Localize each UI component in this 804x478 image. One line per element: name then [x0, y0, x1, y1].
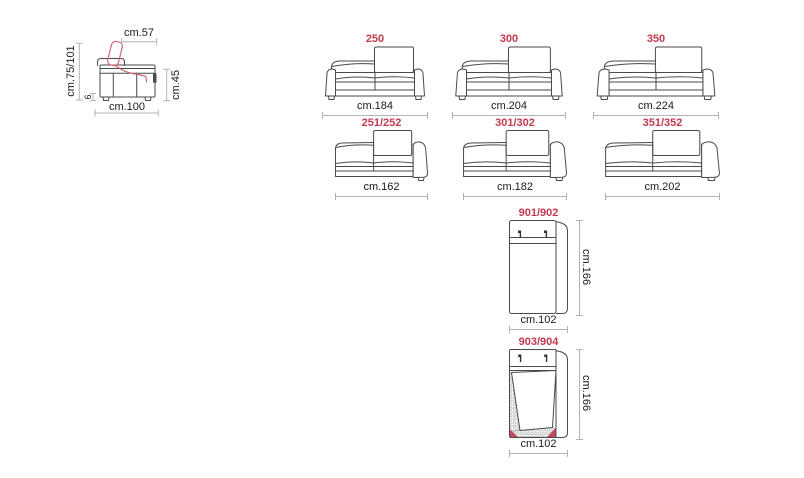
model-301-302-figure: 301/302 cm.182 [463, 117, 567, 200]
width-dimension-label: cm.202 [605, 182, 720, 192]
model-903-904-figure: 903/904 cm.102 cm.166 [509, 336, 568, 457]
width-dimension-label: cm.182 [463, 182, 567, 192]
model-code-label: 903/904 [509, 336, 568, 349]
width-dimension-label: cm.102 [509, 315, 568, 325]
element-top-view-open-drawing [509, 349, 568, 438]
width-dimension-label: cm.162 [335, 182, 428, 192]
sofa-front-drawing [593, 46, 719, 100]
width-dimension-label: cm.102 [509, 439, 568, 449]
width-dimension-line [463, 193, 567, 200]
dim-label-headrest-width: cm.57 [124, 27, 154, 39]
dim-label-depth: cm.100 [109, 101, 145, 113]
width-dimension-line [335, 193, 428, 200]
model-250-figure: 250 cm.184 [322, 33, 428, 119]
dim-label-total-height: cm.75/101 [65, 45, 77, 96]
model-code-label: 250 [322, 33, 428, 46]
model-code-label: 301/302 [463, 117, 567, 130]
height-dimension-label: cm.166 [580, 349, 592, 438]
model-350-figure: 350 cm.224 [593, 33, 719, 119]
model-code-label: 901/902 [509, 207, 568, 220]
model-351-352-figure: 351/352 cm.202 [605, 117, 720, 200]
dim-label-foot-height: 6 [83, 94, 93, 99]
sofa-front-drawing [335, 130, 428, 181]
sofa-side-view-figure: cm.57 cm.75/101 6 cm.45 cm.100 [45, 20, 195, 120]
sofa-front-drawing [605, 130, 720, 181]
width-dimension-label: cm.184 [322, 101, 428, 111]
height-dimension-label: cm.166 [580, 220, 592, 314]
dim-label-seat-height: cm.45 [170, 70, 182, 100]
width-dimension-line [509, 326, 568, 333]
element-top-view-drawing [509, 220, 568, 314]
sofa-front-drawing [452, 46, 566, 100]
model-code-label: 300 [452, 33, 566, 46]
width-dimension-label: cm.204 [452, 101, 566, 111]
model-code-label: 350 [593, 33, 719, 46]
width-dimension-line [605, 193, 720, 200]
sofa-size-chart: cm.57 cm.75/101 6 cm.45 cm.100 250 cm.18… [0, 0, 804, 478]
model-code-label: 251/252 [335, 117, 428, 130]
model-251-252-figure: 251/252 cm.162 [335, 117, 428, 200]
sofa-front-drawing [463, 130, 567, 181]
model-300-figure: 300 cm.204 [452, 33, 566, 119]
width-dimension-label: cm.224 [593, 101, 719, 111]
model-901-902-figure: 901/902 cm.102 cm.166 [509, 207, 568, 333]
sofa-front-drawing [322, 46, 428, 100]
width-dimension-line [509, 450, 568, 457]
model-code-label: 351/352 [605, 117, 720, 130]
